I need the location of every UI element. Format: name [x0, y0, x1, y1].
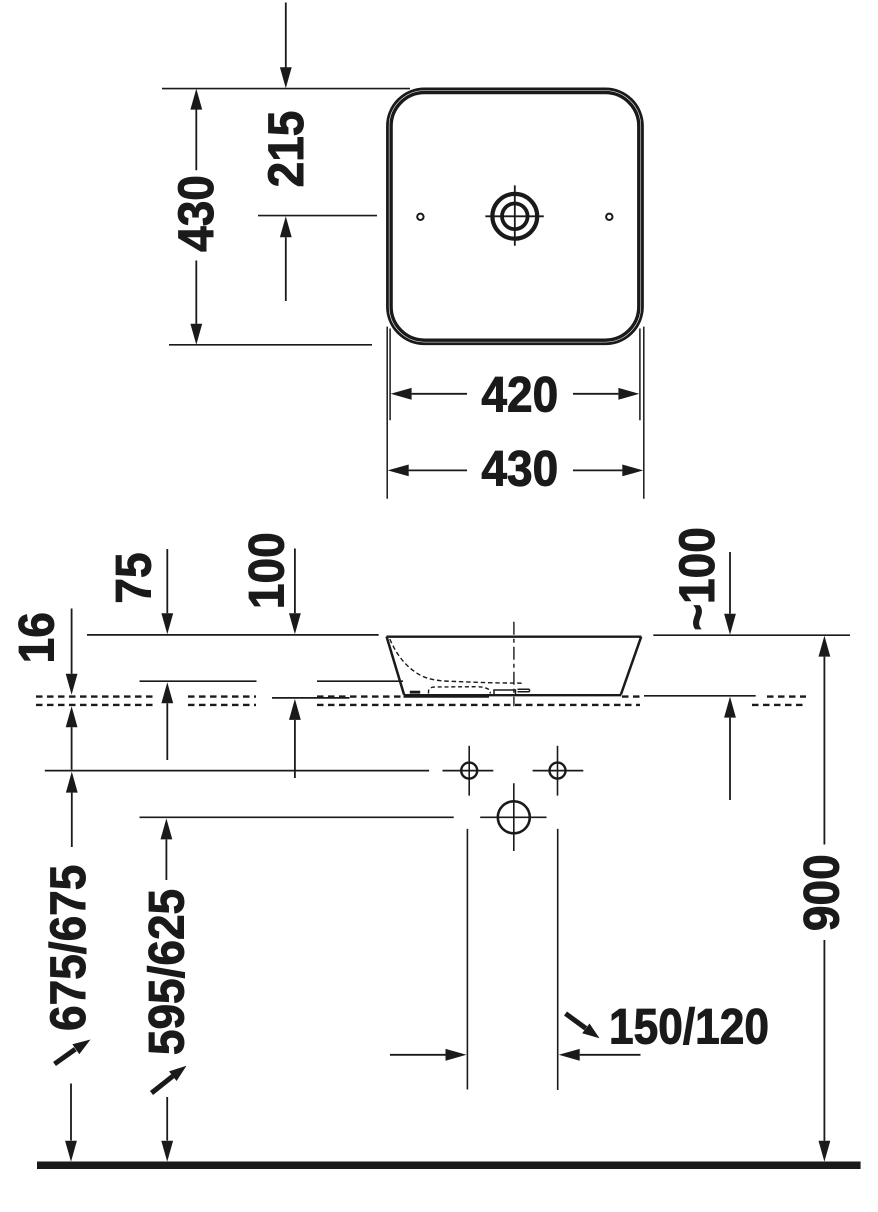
svg-text:150/120: 150/120 — [609, 999, 769, 1055]
svg-text:675/675: 675/675 — [40, 865, 96, 1031]
svg-text:16: 16 — [9, 612, 65, 663]
svg-text:100: 100 — [239, 532, 295, 609]
svg-text:430: 430 — [168, 175, 224, 252]
svg-text:430: 430 — [481, 440, 558, 496]
svg-text:900: 900 — [794, 854, 850, 931]
svg-text:215: 215 — [258, 111, 314, 188]
svg-text:~100: ~100 — [669, 527, 725, 631]
svg-text:75: 75 — [106, 552, 162, 603]
svg-text:595/625: 595/625 — [139, 889, 195, 1055]
svg-text:420: 420 — [481, 366, 558, 422]
